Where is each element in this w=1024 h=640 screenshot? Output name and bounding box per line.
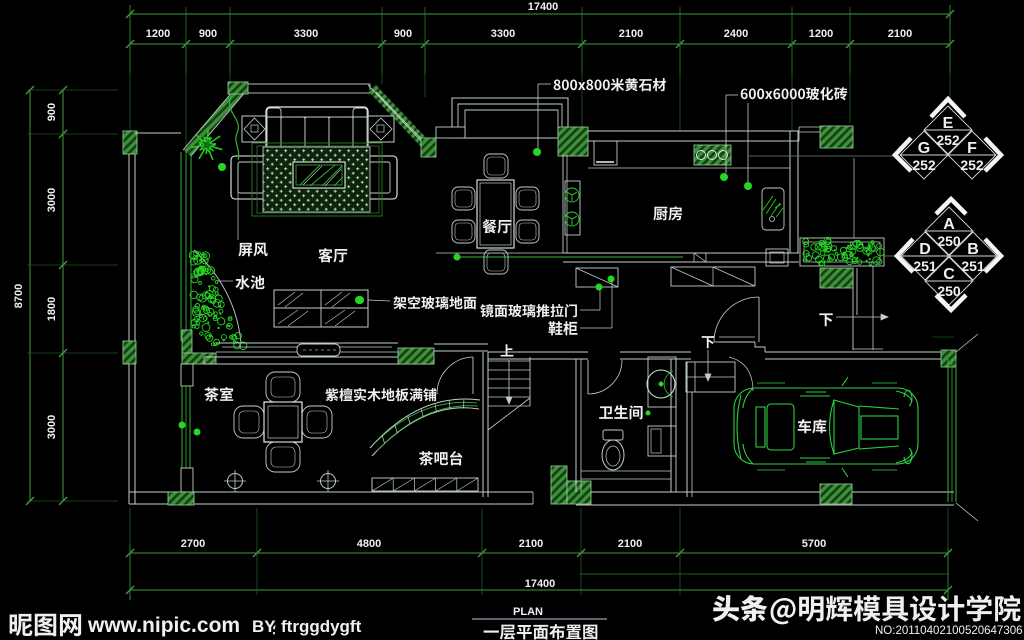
svg-text:3000: 3000: [46, 415, 58, 439]
svg-text:250: 250: [937, 283, 961, 299]
svg-text:5700: 5700: [802, 538, 826, 550]
svg-text:17400: 17400: [528, 1, 559, 13]
svg-text:1200: 1200: [809, 28, 833, 40]
svg-text:250: 250: [937, 233, 961, 249]
svg-text:252: 252: [960, 157, 984, 173]
svg-text:3300: 3300: [491, 28, 515, 40]
svg-text:ftrggdygft: ftrggdygft: [281, 617, 362, 636]
svg-text:PLAN: PLAN: [513, 606, 543, 618]
svg-text:252: 252: [912, 157, 936, 173]
svg-text:900: 900: [46, 103, 58, 121]
svg-text:D: D: [919, 241, 931, 258]
svg-text:2100: 2100: [619, 28, 643, 40]
svg-text:900: 900: [394, 28, 412, 40]
svg-text:2400: 2400: [724, 28, 748, 40]
svg-text:A: A: [943, 216, 955, 233]
svg-text:4800: 4800: [357, 538, 381, 550]
svg-text:www.nipic.com: www.nipic.com: [87, 614, 240, 637]
svg-text:2700: 2700: [181, 538, 205, 550]
svg-text:1800: 1800: [46, 297, 58, 321]
svg-text:251: 251: [913, 258, 937, 274]
svg-text:3300: 3300: [294, 28, 318, 40]
svg-text:252: 252: [936, 132, 960, 148]
svg-text:17400: 17400: [525, 578, 556, 590]
svg-text:251: 251: [961, 258, 985, 274]
svg-text:E: E: [943, 115, 954, 132]
svg-text:2100: 2100: [519, 538, 543, 550]
svg-text:B: B: [967, 241, 979, 258]
svg-text:NO:20110402100520647306: NO:20110402100520647306: [875, 625, 1023, 637]
svg-text:3000: 3000: [46, 188, 58, 212]
svg-text:900: 900: [199, 28, 217, 40]
svg-text:F: F: [967, 140, 977, 157]
svg-text:؛: ؛: [272, 622, 276, 637]
svg-text:8700: 8700: [13, 284, 25, 308]
svg-text:G: G: [918, 140, 930, 157]
svg-text:2100: 2100: [618, 538, 642, 550]
svg-text:1200: 1200: [146, 28, 170, 40]
svg-text:C: C: [943, 266, 955, 283]
svg-text:2100: 2100: [888, 28, 912, 40]
